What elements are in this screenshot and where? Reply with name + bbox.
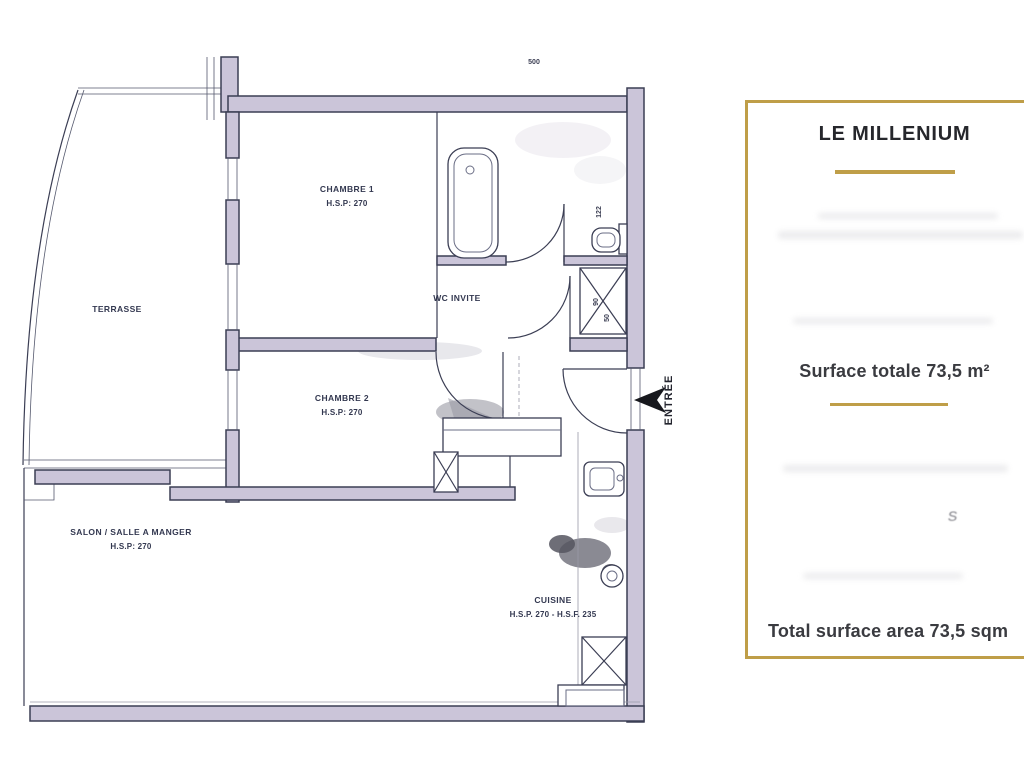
closet-shaft <box>434 452 458 492</box>
kitchen-sink <box>584 462 624 496</box>
erased-text-smudge <box>783 465 1008 472</box>
dimension-top: 500 <box>528 59 540 66</box>
toilet <box>592 224 627 254</box>
project-title: LE MILLENIUM <box>748 123 1024 146</box>
fridge-shaft <box>582 637 626 685</box>
kitchen-counter <box>558 685 624 706</box>
erased-text-smudge <box>803 573 963 579</box>
bathtub <box>448 148 498 258</box>
dimension-shaft-a: 90 <box>593 298 600 306</box>
technical-shaft <box>580 268 626 334</box>
label-chambre2: CHAMBRE 2 <box>315 393 369 403</box>
label-terrasse: TERRASSE <box>92 304 142 314</box>
label-chambre2-hsp: H.S.P: 270 <box>321 408 362 417</box>
dimension-door: 122 <box>596 206 603 218</box>
info-panel: LE MILLENIUM Surface totale 73,5 m² S To… <box>745 100 1024 659</box>
surface-total-fr: Surface totale 73,5 m² <box>748 361 1024 382</box>
gold-divider-top <box>835 170 955 174</box>
label-salon-hsp: H.S.P: 270 <box>110 542 151 551</box>
label-salon: SALON / SALLE A MANGER <box>70 527 192 537</box>
label-wc: WC INVITE <box>433 293 481 303</box>
gold-divider-middle <box>830 403 948 406</box>
desk <box>443 418 561 456</box>
label-cuisine-hsp: H.S.P. 270 - H.S.F. 235 <box>510 610 597 619</box>
stray-character: S <box>947 508 959 524</box>
label-chambre1: CHAMBRE 1 <box>320 184 374 194</box>
erased-text-smudge <box>818 213 998 219</box>
entrance-arrow-icon <box>634 387 666 413</box>
surface-total-en: Total surface area 73,5 sqm <box>768 621 1008 642</box>
erased-text-smudge <box>778 231 1023 239</box>
room-labels: TERRASSE CHAMBRE 1 H.S.P: 270 WC INVITE … <box>70 184 596 619</box>
cooktop <box>601 565 623 587</box>
terrace-boundary <box>23 88 226 706</box>
dimension-shaft-b: 50 <box>604 314 611 322</box>
erased-text-smudge <box>793 318 993 324</box>
entrance-label: ENTRÉE <box>662 375 675 426</box>
label-chambre1-hsp: H.S.P: 270 <box>326 199 367 208</box>
fixtures <box>434 148 627 706</box>
label-cuisine: CUISINE <box>534 595 571 605</box>
